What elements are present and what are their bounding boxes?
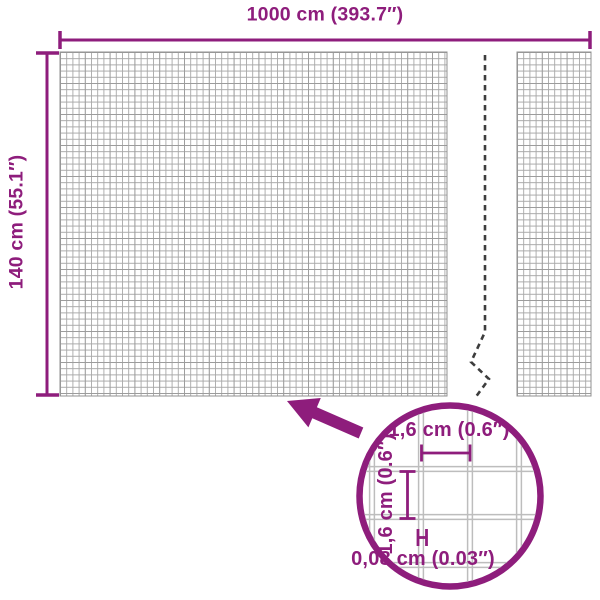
width-dimension-line [60, 31, 590, 49]
detail-arrow-icon [287, 398, 363, 439]
mesh-panel-left [60, 52, 447, 396]
product-dimension-diagram: 1000 cm (393.7″) 140 cm (55.1″) 1,6 cm (… [0, 0, 600, 600]
tear-line [471, 55, 489, 398]
height-dimension-line [36, 53, 59, 395]
detail-cell-width-label: 1,6 cm (0.6″) [388, 420, 509, 440]
detail-wire-thickness-label: 0,08 cm (0.03″) [351, 549, 495, 569]
detail-cell-height-label: 1,6 cm (0.6″) [376, 433, 396, 554]
width-label: 1000 cm (393.7″) [247, 5, 404, 25]
mesh-panel-right [517, 52, 591, 396]
height-label: 140 cm (55.1″) [7, 155, 27, 290]
diagram-canvas [0, 0, 600, 600]
